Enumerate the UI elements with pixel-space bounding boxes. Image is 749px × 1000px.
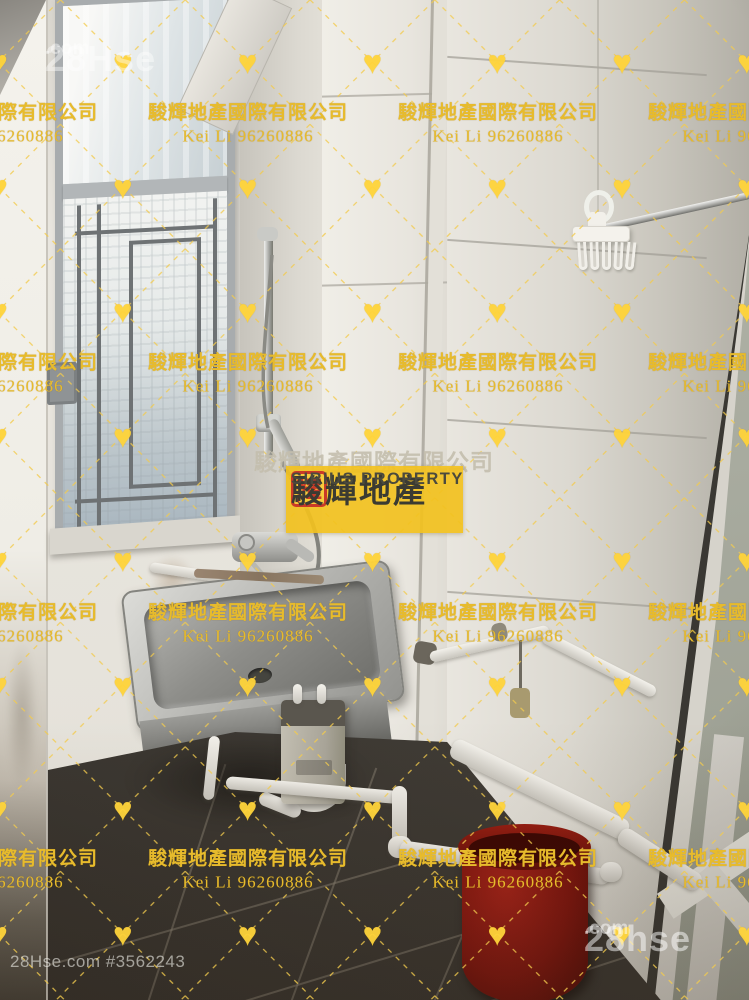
hanging-hook <box>613 242 623 270</box>
shower-bar-mount <box>257 227 278 241</box>
grille-frame <box>129 237 201 489</box>
gas-meter-label <box>296 760 332 775</box>
hanging-hook <box>577 242 588 271</box>
gas-pipe <box>317 684 326 704</box>
grille-bar <box>213 198 217 522</box>
property-photo: ♥♥♥♥♥♥♥♥♥♥♥♥♥♥♥♥♥♥♥♥♥♥♥♥♥♥♥♥♥♥♥♥♥♥♥♥♥♥♥♥… <box>0 0 749 1000</box>
hook-rack <box>572 226 630 242</box>
tap-knob <box>238 534 255 551</box>
gas-meter-top <box>281 700 345 726</box>
valve-stem <box>519 640 522 692</box>
brass-valve <box>510 688 530 718</box>
hanging-hook <box>590 242 600 270</box>
listing-caption: 28Hse.com #3562243 <box>10 952 185 972</box>
window-latch <box>47 362 77 406</box>
grille-bar <box>77 205 81 529</box>
gas-pipe <box>293 684 302 704</box>
pipe-elbow <box>600 862 622 882</box>
agency-logo-banner: 輝 駿輝地產 SIRIUS PROPERTY <box>286 466 463 533</box>
agency-name-en: SIRIUS PROPERTY <box>291 470 464 489</box>
grout-line <box>260 945 660 1000</box>
left-door-edge <box>0 0 48 1000</box>
red-bucket-inner <box>469 833 580 863</box>
hanging-hook <box>602 242 611 270</box>
wall-smudge <box>6 640 38 790</box>
grout-line <box>48 846 462 966</box>
grille-bar <box>97 204 101 528</box>
